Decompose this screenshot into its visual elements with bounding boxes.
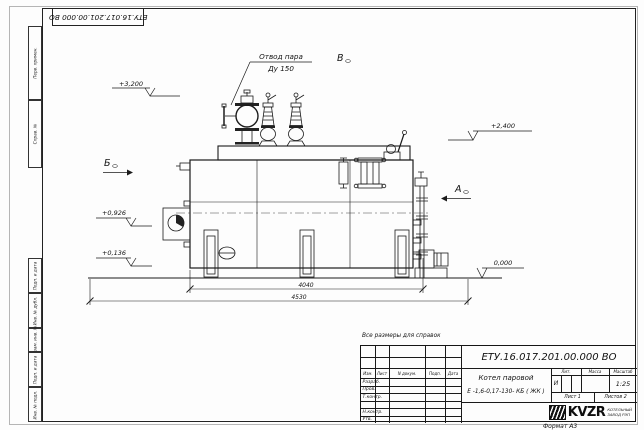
dimension-value: 4530 xyxy=(291,294,306,301)
safety-valve xyxy=(287,93,305,146)
dimension-4530 xyxy=(87,279,472,305)
row-utv: Утв. xyxy=(363,417,372,422)
lever-valve xyxy=(384,131,407,161)
callout-text: Ду 150 xyxy=(267,64,294,73)
dimension-value: 4040 xyxy=(298,282,313,289)
callout-text: Отвод пара xyxy=(259,52,303,61)
kvzr-logo: KVZR xyxy=(568,405,606,420)
left-wall-fitting xyxy=(176,163,190,170)
elevation-value: +0,136 xyxy=(102,249,126,257)
product-name-line1: Котел паровой xyxy=(461,371,551,385)
masshtab-value: 1:25 xyxy=(609,375,637,392)
title-block: ЕТУ.16.017.201.00.000 ВО Изм. Лист N док… xyxy=(360,345,636,422)
steam-outlet-valve xyxy=(222,90,259,145)
view-arrowhead-b xyxy=(127,170,133,176)
col-podp: Подп. xyxy=(425,368,445,378)
product-name-line2: Е -1,6-0,17-130- КБ ( ЖК ) xyxy=(461,385,551,399)
elevation-mark-0000 xyxy=(477,268,524,278)
col-list: Лист xyxy=(375,368,389,378)
body-section-lines xyxy=(257,160,350,268)
elevation-mark-2400 xyxy=(448,131,532,140)
elevation-value: +3,200 xyxy=(119,80,143,88)
level-gauge xyxy=(339,158,348,188)
view-label-mark xyxy=(113,165,118,168)
reference-note: Все размеры для справок xyxy=(362,333,441,339)
elevation-value: +2,400 xyxy=(491,122,515,130)
view-arrowhead-a xyxy=(441,196,447,202)
view-label-v: В xyxy=(337,53,344,64)
view-label-mark xyxy=(464,191,469,194)
sheets-total: Листов 2 xyxy=(594,392,637,402)
format-note: Формат А3 xyxy=(543,423,577,430)
org-name: КОТЕЛЬНЫЙ ЗАВОД РЭП xyxy=(607,408,632,417)
elevation-mark-0926 xyxy=(96,218,152,226)
burner-unit xyxy=(163,201,190,247)
view-label-a: А xyxy=(454,184,462,195)
elevation-mark-0136 xyxy=(96,258,152,266)
manhole xyxy=(219,247,235,259)
lit-value: И xyxy=(551,375,561,392)
blueprint-page: { "sheet": { "designation_top": "ЕТУ.16.… xyxy=(0,0,644,430)
lit-label: Лит. xyxy=(551,368,581,375)
view-label-mark xyxy=(346,60,351,63)
col-izm: Изм. xyxy=(361,368,375,378)
row-prov: Пров. xyxy=(363,387,376,392)
view-label-b: Б xyxy=(104,158,111,169)
org-name-line2: ЗАВОД РЭП xyxy=(607,413,632,418)
elevation-value: 0,000 xyxy=(494,259,513,267)
col-doc: N докум. xyxy=(389,368,425,378)
row-razrab: Разраб. xyxy=(363,380,381,385)
row-nkontr: Н.контр. xyxy=(363,410,383,415)
masshtab-label: Масштаб xyxy=(609,368,637,375)
water-level-column xyxy=(354,158,386,188)
boiler-body xyxy=(190,160,413,268)
steam-outlet-callout: Отвод пара Ду 150 xyxy=(231,52,312,105)
row-tkontr: Т.контр. xyxy=(363,395,383,400)
col-data: Дата xyxy=(445,368,461,378)
sheet-number: Лист 1 xyxy=(551,392,594,402)
title-designation: ЕТУ.16.017.201.00.000 ВО xyxy=(461,346,637,368)
kvzr-emblem-icon xyxy=(549,405,566,420)
massa-label: Масса xyxy=(581,368,609,375)
org-block: KVZR КОТЕЛЬНЫЙ ЗАВОД РЭП xyxy=(549,403,632,422)
elevation-mark-3200 xyxy=(112,88,180,96)
safety-valve xyxy=(259,93,277,146)
elevation-value: +0,926 xyxy=(102,209,126,217)
burner-swirl-icon xyxy=(176,215,184,227)
